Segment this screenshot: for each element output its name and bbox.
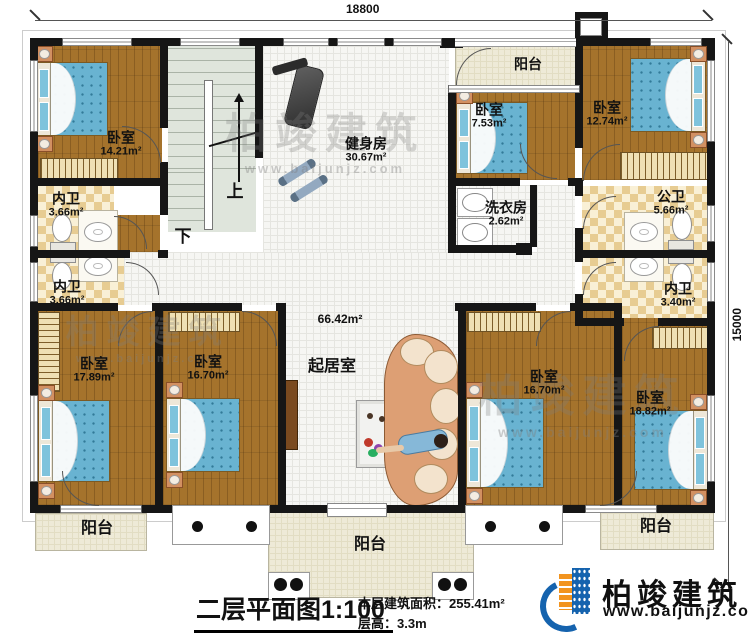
plan-info-height: 层高：3.3m	[358, 614, 505, 634]
room-label-bath-left-2: 内卫 3.66m²	[50, 279, 85, 308]
bed-sheet	[668, 411, 693, 489]
dimension-right-value: 15000	[730, 308, 744, 341]
wall-segment	[30, 178, 168, 186]
stair-label-up: 上	[227, 182, 244, 202]
nightstand	[466, 488, 483, 504]
bed	[38, 400, 110, 482]
wall-segment	[30, 250, 130, 258]
window	[585, 505, 657, 513]
wall-pier	[516, 243, 532, 255]
nightstand	[38, 483, 55, 499]
wardrobe	[620, 152, 708, 180]
bed	[634, 410, 708, 490]
floor-hallway-right	[537, 185, 575, 252]
bed-headboard	[167, 399, 181, 471]
room-label-gym: 健身房 30.67m²	[345, 136, 387, 165]
nightstand	[166, 382, 183, 398]
bed-sheet	[181, 399, 206, 471]
wall-segment	[160, 46, 168, 128]
wall-segment	[707, 240, 715, 262]
bed	[466, 398, 544, 488]
bed-headboard	[39, 401, 53, 481]
stair-label-down: 下	[175, 227, 192, 247]
wardrobe	[38, 312, 60, 392]
bed	[630, 58, 706, 132]
brand-url: www.baijunjz.com	[603, 603, 750, 621]
room-label-living: 起居室	[308, 358, 356, 376]
stair-arrow-line	[238, 102, 240, 182]
wardrobe	[168, 312, 240, 332]
bed-mattress	[635, 411, 693, 489]
column-dot	[485, 521, 496, 532]
room-label-bedroom-top-left: 卧室 14.21m²	[101, 130, 142, 159]
window	[180, 38, 240, 46]
room-label-bedroom-753: 卧室 7.53m²	[472, 102, 507, 131]
room-label-balcony-bottom-left: 阳台	[81, 520, 113, 538]
sink-icon	[84, 256, 112, 276]
table-decor	[367, 413, 373, 419]
wall-segment	[575, 318, 624, 326]
plan-title-text: 二层平面图	[196, 596, 321, 624]
wall-segment	[385, 505, 475, 513]
nightstand	[690, 132, 707, 148]
bed-headboard	[693, 411, 707, 489]
bed-headboard	[467, 399, 481, 487]
logo-building-orange	[559, 574, 572, 610]
pillow	[469, 406, 479, 441]
nightstand	[166, 472, 183, 488]
dimension-line-right	[728, 42, 729, 590]
dimension-tick	[702, 9, 713, 20]
table-decor	[379, 416, 385, 422]
wall-segment	[455, 303, 536, 311]
window	[393, 38, 442, 46]
room-label-balcony-top: 阳台	[514, 56, 542, 72]
wardrobe	[467, 312, 541, 332]
brand-logo-icon	[540, 566, 596, 626]
pillow	[693, 98, 703, 127]
room-label-bedroom-1882: 卧室 18.82m²	[630, 390, 671, 419]
wall-segment	[458, 303, 466, 505]
window	[30, 262, 38, 302]
pillow	[459, 109, 469, 138]
floor-hallway	[124, 252, 575, 305]
wall-segment	[158, 250, 168, 258]
wall-segment	[448, 93, 456, 252]
nightstand	[466, 382, 483, 398]
wall-segment	[155, 303, 163, 505]
pillow	[169, 438, 179, 467]
wall-segment	[570, 303, 622, 311]
wall-segment	[30, 505, 60, 513]
flower-decor	[364, 438, 373, 447]
pillow	[41, 444, 51, 476]
wall-segment	[160, 186, 168, 215]
room-label-laundry: 洗衣房 2.62m²	[485, 200, 527, 229]
window	[60, 505, 142, 513]
floor-plan-canvas: 柏竣建筑 www.baijunjz.com 柏竣建筑 www.baijunjz.…	[0, 0, 750, 635]
bed	[166, 398, 240, 472]
room-label-bath-left-1: 内卫 3.66m²	[49, 191, 84, 220]
room-label-bath-public: 公卫 5.66m²	[654, 189, 689, 218]
wall-segment	[568, 178, 582, 186]
window	[707, 60, 715, 142]
window	[62, 38, 132, 46]
sliding-door	[327, 503, 387, 517]
bed-mattress	[481, 399, 543, 487]
room-label-bedroom-1274: 卧室 12.74m²	[587, 100, 628, 129]
nightstand	[690, 46, 707, 62]
dimension-tick	[29, 9, 40, 20]
wall-segment	[152, 303, 242, 311]
wall-segment	[575, 46, 583, 148]
bed-sheet	[53, 401, 78, 481]
nightstand	[690, 490, 707, 506]
wall-segment	[238, 38, 283, 46]
bed-headboard	[37, 63, 51, 135]
plan-info-area: 本层建筑面积：255.41m²	[358, 594, 505, 614]
window	[448, 85, 580, 93]
wall-segment	[276, 303, 286, 311]
nightstand	[38, 385, 55, 401]
window	[30, 60, 38, 132]
wall-segment	[130, 38, 180, 46]
column-dot	[454, 578, 467, 591]
nightstand	[690, 394, 707, 410]
pillow	[693, 65, 703, 94]
bed-sheet	[481, 399, 508, 487]
window	[650, 38, 702, 46]
bed-mattress	[51, 63, 107, 135]
wall-segment	[278, 303, 286, 505]
wall-segment	[30, 300, 38, 395]
wall-segment	[707, 38, 715, 60]
wall-segment	[608, 38, 650, 46]
bed-mattress	[631, 59, 691, 131]
bed-sheet	[665, 59, 691, 131]
stair-arrow-head	[234, 93, 244, 102]
sofa-cushion	[424, 350, 458, 384]
wall-segment	[655, 505, 715, 513]
sink-icon	[630, 256, 658, 276]
stair-railing	[204, 80, 213, 230]
wall-segment	[30, 38, 38, 60]
wall-segment	[530, 185, 537, 247]
column-dot	[192, 521, 203, 532]
logo-building-blue	[572, 568, 590, 614]
pillow	[695, 417, 705, 449]
room-label-bedroom-1789: 卧室 17.89m²	[74, 356, 115, 385]
pillow	[39, 69, 49, 98]
wall-segment	[30, 130, 38, 215]
room-label-bedroom-1670-right: 卧室 16.70m²	[524, 369, 565, 398]
column-dot	[246, 521, 257, 532]
bed	[36, 62, 108, 136]
dimension-top-value: 18800	[346, 2, 379, 16]
wall-segment	[255, 46, 263, 158]
bed-sheet	[51, 63, 76, 135]
window	[337, 38, 385, 46]
sink-icon	[630, 222, 658, 242]
balcony-railing	[455, 38, 576, 47]
bed-mattress	[53, 401, 109, 481]
nightstand	[36, 136, 53, 152]
nightstand	[36, 46, 53, 62]
pillow	[469, 447, 479, 482]
window	[707, 205, 715, 242]
window	[707, 262, 715, 302]
dimension-line-top	[35, 20, 712, 21]
sofa-cushion	[414, 464, 448, 494]
bed-headboard	[691, 59, 705, 131]
person-head	[434, 434, 448, 448]
room-area-living: 66.42m²	[318, 313, 363, 327]
window	[283, 38, 329, 46]
toilet-tank	[668, 240, 694, 250]
pillow	[41, 407, 51, 439]
wall-segment	[707, 140, 715, 205]
room-label-bedroom-1670-left: 卧室 16.70m²	[188, 354, 229, 383]
window	[30, 215, 38, 247]
bed-headboard	[457, 103, 471, 173]
pillow	[695, 453, 705, 485]
plan-info: 本层建筑面积：255.41m² 层高：3.3m	[358, 594, 505, 634]
column-dot	[438, 578, 451, 591]
room-label-balcony-bottom-center: 阳台	[354, 536, 386, 554]
window	[30, 395, 38, 482]
sink-icon	[84, 222, 112, 242]
wall-segment	[658, 318, 707, 326]
wall-segment	[448, 178, 520, 186]
bed-mattress	[181, 399, 239, 471]
pillow	[169, 405, 179, 434]
pillow	[459, 141, 469, 170]
room-label-balcony-bottom-right: 阳台	[640, 518, 672, 536]
wall-segment	[707, 300, 715, 395]
wardrobe	[652, 327, 708, 349]
window	[707, 395, 715, 482]
pillow	[39, 102, 49, 131]
wall-segment	[582, 250, 707, 258]
room-label-bath-ensuite-right: 内卫 3.40m²	[661, 281, 696, 310]
column-dot	[539, 521, 550, 532]
